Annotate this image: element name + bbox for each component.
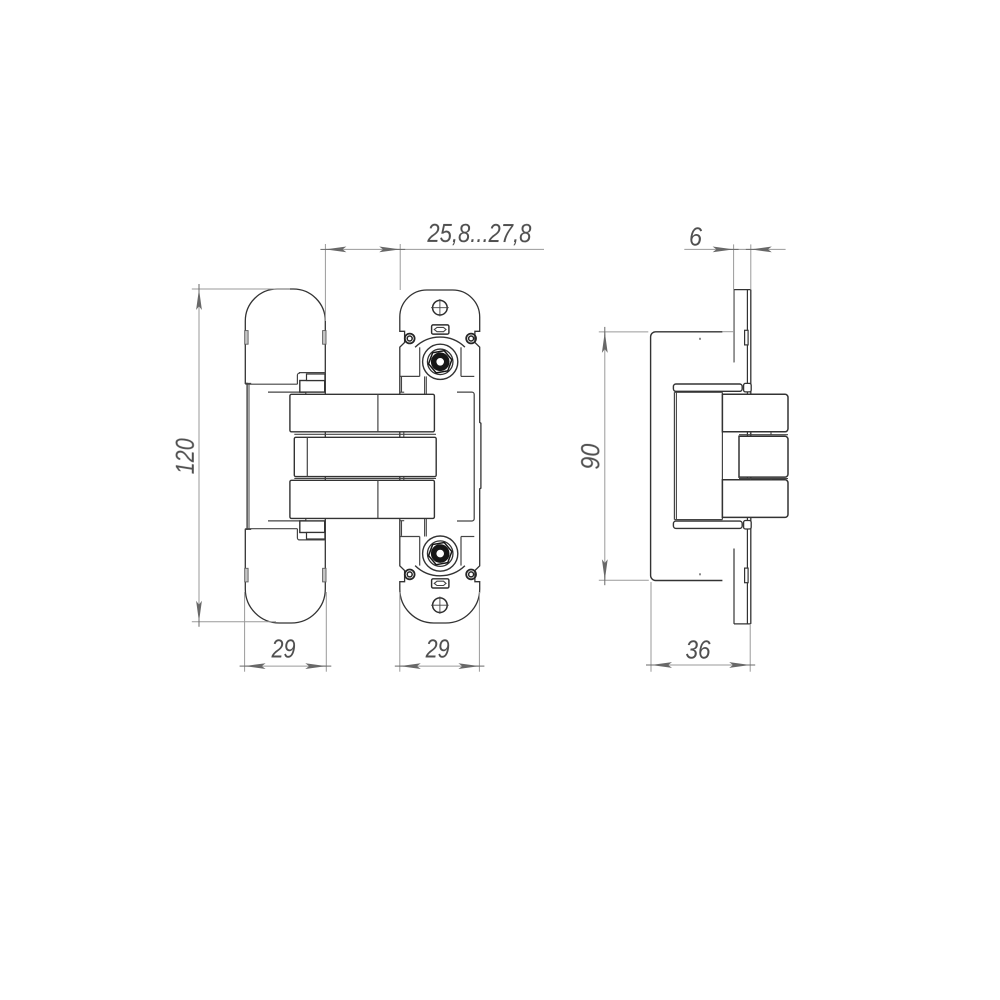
svg-text:90: 90 [575,443,605,469]
svg-text:25,8...27,8: 25,8...27,8 [427,218,532,248]
svg-text:6: 6 [689,221,703,251]
svg-text:29: 29 [425,633,450,663]
svg-text:29: 29 [271,633,296,663]
svg-text:120: 120 [170,438,200,474]
svg-text:36: 36 [685,634,711,664]
